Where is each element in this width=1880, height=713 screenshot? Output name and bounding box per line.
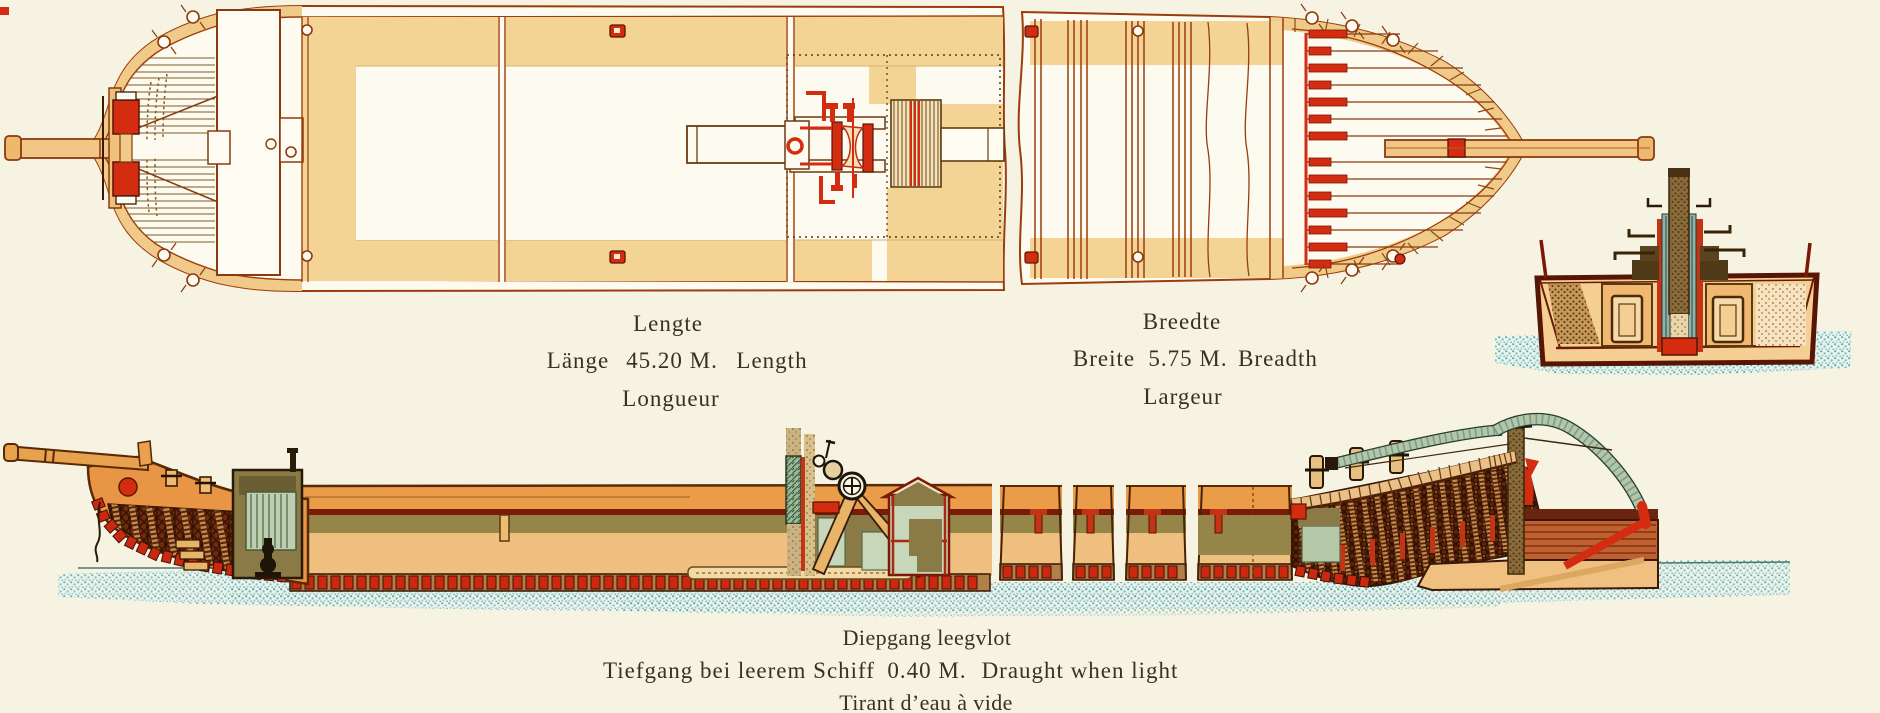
svg-text:5.75 M.: 5.75 M. [1148,346,1227,371]
svg-text:Draught when light: Draught when light [982,658,1179,683]
svg-text:Largeur: Largeur [1143,384,1222,409]
svg-text:Breadth: Breadth [1238,346,1318,371]
svg-text:Length: Length [736,348,807,373]
svg-text:Longueur: Longueur [622,386,719,411]
svg-text:Diepgang leegvlot: Diepgang leegvlot [843,625,1012,650]
svg-text:Tirant d’eau à vide: Tirant d’eau à vide [839,690,1013,713]
svg-text:Länge: Länge [547,348,609,373]
svg-text:Tiefgang bei leerem Schiff: Tiefgang bei leerem Schiff [603,658,875,683]
svg-text:Lengte: Lengte [633,311,703,336]
svg-text:45.20 M.: 45.20 M. [626,348,718,373]
svg-text:0.40 M.: 0.40 M. [887,658,966,683]
svg-text:Breedte: Breedte [1143,309,1222,334]
svg-text:Breite: Breite [1073,346,1135,371]
